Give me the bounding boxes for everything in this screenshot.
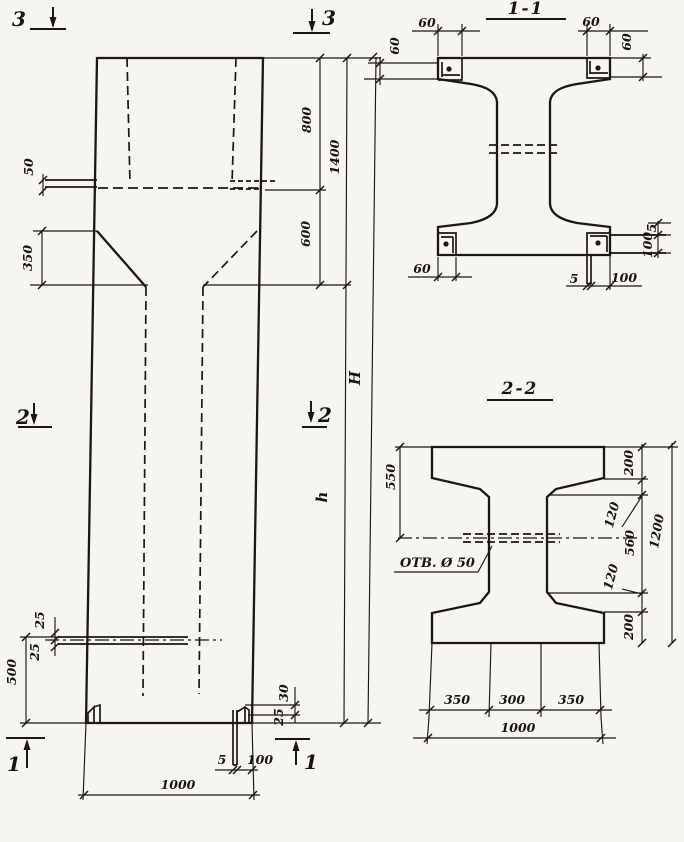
title-2-2: 2-2 — [501, 379, 539, 399]
dim-base-strip-len: 100 — [247, 752, 273, 767]
dim-strip-thk-right: 5 — [644, 224, 659, 233]
base-plate-left — [88, 705, 100, 723]
section-1-1: 1-1 60 60 60 60 60 5 100 5 100 — [364, 0, 671, 290]
dim-width: 1000 — [161, 777, 196, 792]
dim-flange-bottom: 200 — [621, 614, 636, 641]
dim-total-height: H — [346, 370, 364, 386]
hole-note: ОТВ. Ø 50 — [400, 556, 475, 571]
drawing-sheet: 3 3 2 2 1 1 50 350 800 1400 600 H h 25 2… — [0, 0, 684, 842]
dim-plate-bl-w: 60 — [413, 261, 431, 276]
dim-strip-len-right: 100 — [640, 232, 655, 258]
section-2-2: 2-2 ОТВ. Ø 50 550 200 120 560 120 200 12… — [383, 379, 678, 744]
taper-diagonal-left — [97, 231, 146, 287]
dim-chamfer-bottom: 120 — [600, 562, 621, 591]
dim-flange-top: 200 — [621, 450, 636, 477]
anchor-dot-br — [595, 240, 600, 245]
dim-depth-total: 1200 — [646, 512, 667, 549]
dim-base-plate-a: 30 — [276, 684, 291, 702]
dim-plate-offset: 50 — [21, 158, 36, 176]
dim-head-upper: 800 — [299, 107, 314, 133]
column-outline — [86, 58, 263, 723]
dim-width-total: 1000 — [501, 720, 536, 735]
s11-dim-lines — [364, 24, 671, 290]
s11-dim-ticks — [376, 27, 662, 290]
section-marker-3-right: 3 — [322, 6, 336, 30]
dim-plate-tl-h: 60 — [387, 37, 402, 55]
dim-web-clear: 560 — [622, 530, 637, 556]
section-marker-arrowheads — [24, 17, 316, 751]
section-marker-1-right: 1 — [304, 750, 318, 774]
dim-head-total: 1400 — [327, 139, 342, 174]
anchor-plates — [438, 58, 666, 284]
dim-web-width: 300 — [499, 692, 525, 707]
dim-flange-to-hole: 550 — [383, 464, 398, 490]
section-1-1-outline — [438, 58, 610, 255]
taper-diagonal-right-hidden — [203, 231, 257, 287]
dim-strip-thk-bottom: 5 — [570, 271, 579, 286]
section-marker-2-right: 2 — [317, 403, 332, 427]
title-1-1: 1-1 — [508, 0, 545, 19]
dim-flange-right: 350 — [558, 692, 584, 707]
section-marker-1-left: 1 — [7, 752, 21, 776]
dim-base-strip-thk: 5 — [218, 752, 227, 767]
dim-hole-elevation: 500 — [4, 659, 19, 685]
dim-hole-upper: 25 — [32, 611, 47, 629]
dim-plate-tl-w: 60 — [418, 15, 436, 30]
head-plate-lines — [45, 180, 97, 187]
anchor-dot-tl — [446, 66, 451, 71]
dim-plate-tr-w: 60 — [582, 14, 600, 29]
base-plate-right — [237, 707, 249, 723]
anchor-dot-tr — [595, 65, 600, 70]
section-marker-3-left: 3 — [12, 7, 26, 31]
hidden-lines-head — [127, 58, 236, 184]
anchor-dot-bl — [443, 241, 448, 246]
column-drawing: 3 3 2 2 1 1 50 350 800 1400 600 H h 25 2… — [0, 0, 684, 842]
section-marker-2-left: 2 — [15, 405, 30, 429]
dim-head-lower: 600 — [298, 221, 313, 247]
section-2-2-outline — [432, 447, 604, 643]
base-strip-right — [233, 710, 237, 765]
front-view: 3 3 2 2 1 1 50 350 800 1400 600 H h 25 2… — [4, 6, 381, 800]
dim-strip-len-bottom: 100 — [611, 270, 637, 285]
dim-shaft-height: h — [313, 492, 331, 503]
dim-base-plate-b: 25 — [271, 708, 286, 726]
dim-hole-lower: 25 — [27, 643, 42, 661]
dim-chamfer-top: 120 — [601, 500, 622, 529]
dim-flange-left: 350 — [444, 692, 470, 707]
dim-taper-height: 350 — [20, 245, 35, 271]
dim-plate-tr-h: 60 — [619, 33, 634, 51]
hidden-lines-shaft — [143, 287, 203, 696]
s22-dim-lines — [395, 443, 678, 744]
web-hole-hidden — [489, 145, 557, 153]
